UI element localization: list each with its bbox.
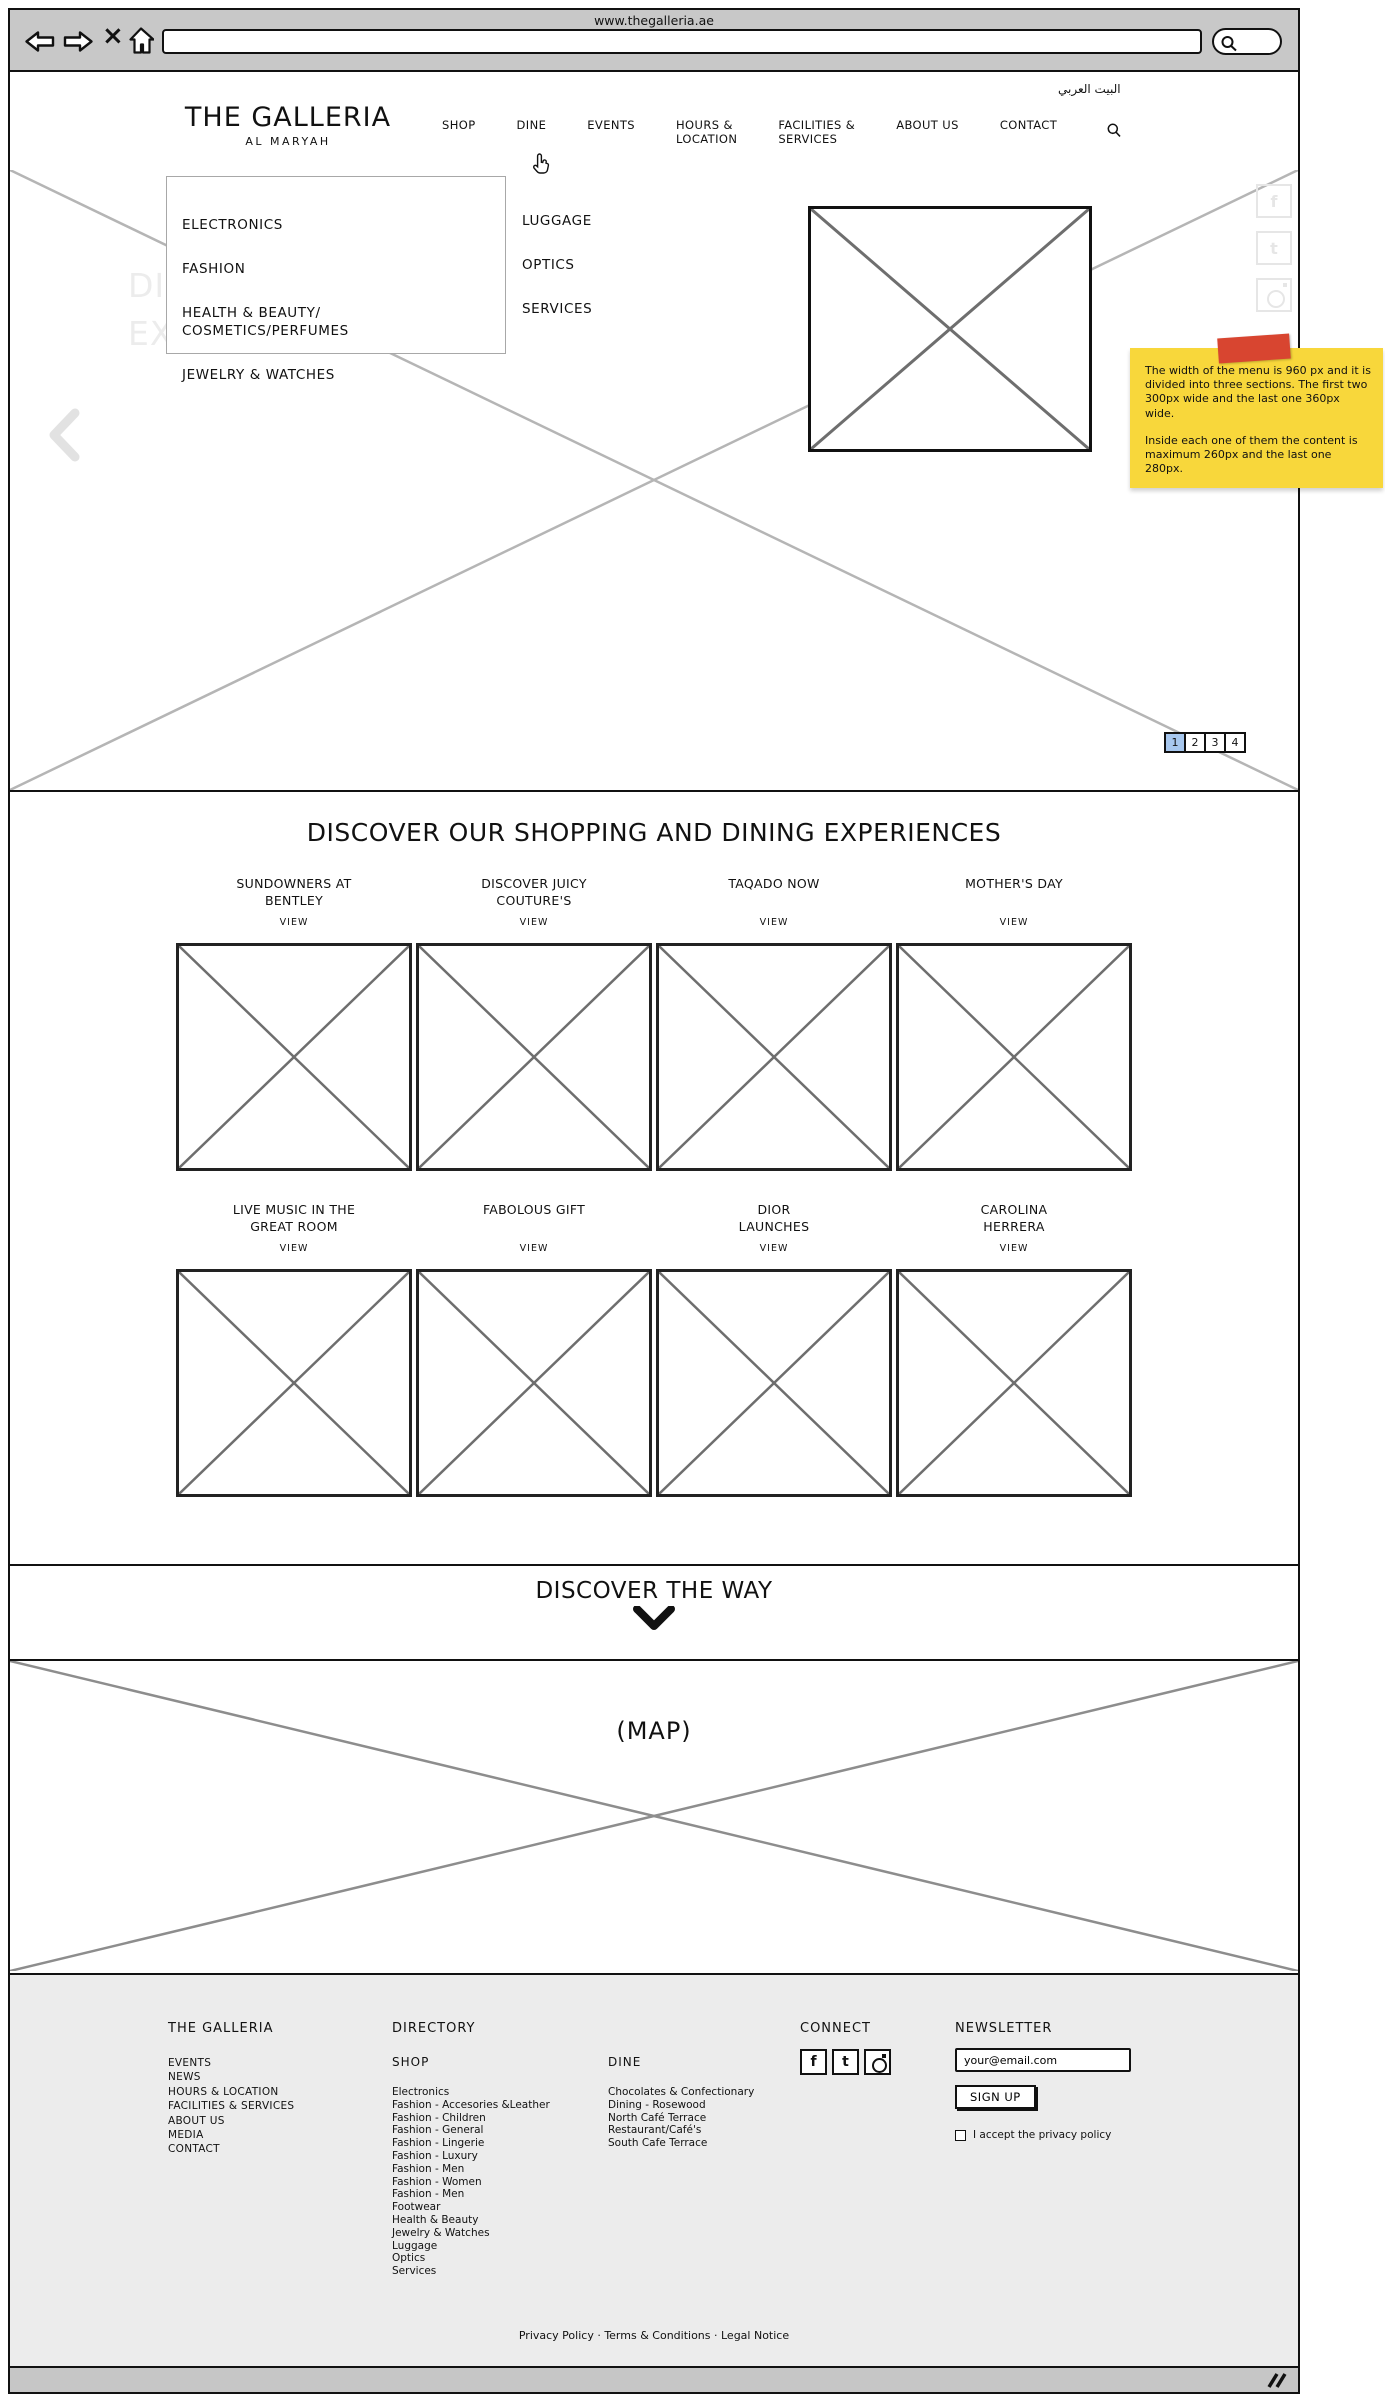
home-icon[interactable] xyxy=(128,26,154,59)
menu-item[interactable]: SERVICES xyxy=(522,300,592,318)
card-title: MOTHER'S DAY xyxy=(896,875,1132,917)
card-image-placeholder[interactable] xyxy=(896,1269,1132,1497)
card-image-placeholder[interactable] xyxy=(176,1269,412,1497)
directory-link[interactable]: Jewelry & Watches xyxy=(392,2227,550,2240)
card-view-link[interactable]: VIEW xyxy=(656,917,892,931)
carousel-page-button[interactable]: 3 xyxy=(1204,732,1226,753)
nav-item[interactable]: FACILITIES & SERVICES xyxy=(778,118,855,146)
carousel-page-button[interactable]: 1 xyxy=(1164,732,1186,753)
card-title: SUNDOWNERS AT BENTLEY xyxy=(176,875,412,917)
privacy-row: I accept the privacy policy xyxy=(955,2129,1131,2141)
experience-card: TAQADO NOW VIEW xyxy=(656,875,892,1171)
card-view-link[interactable]: VIEW xyxy=(896,1243,1132,1257)
url-field[interactable] xyxy=(162,29,1202,54)
annotation-note: The width of the menu is 960 px and it i… xyxy=(1130,348,1383,488)
menu-item[interactable]: ELECTRONICS xyxy=(182,216,349,234)
facebook-icon[interactable]: f xyxy=(1256,184,1292,218)
privacy-label: I accept the privacy policy xyxy=(973,2129,1111,2141)
experiences-heading: DISCOVER OUR SHOPPING AND DINING EXPERIE… xyxy=(10,792,1298,847)
nav-item[interactable]: EVENTS xyxy=(587,118,635,132)
directory-link[interactable]: Services xyxy=(392,2265,550,2278)
menu-item[interactable]: LUGGAGE xyxy=(522,212,592,230)
footer-shop-links: ElectronicsFashion - Accesories &Leather… xyxy=(392,2086,550,2278)
note-paragraph: Inside each one of them the content is m… xyxy=(1145,434,1371,477)
footer-link[interactable]: FACILITIES & SERVICES xyxy=(168,2099,294,2113)
footer-link[interactable]: ABOUT US xyxy=(168,2114,294,2128)
discover-the-way-section: DISCOVER THE WAY xyxy=(10,1564,1298,1661)
footer-dine-heading: DINE xyxy=(608,2055,754,2069)
card-title: CAROLINA HERRERA xyxy=(896,1201,1132,1243)
dine-link[interactable]: Dining - Rosewood xyxy=(608,2099,754,2112)
forward-icon[interactable] xyxy=(62,28,94,59)
card-title: LIVE MUSIC IN THE GREAT ROOM xyxy=(176,1201,412,1243)
way-heading: DISCOVER THE WAY xyxy=(10,1578,1298,1604)
browser-chrome: www.thegalleria.ae × xyxy=(10,10,1298,72)
directory-link[interactable]: Footwear xyxy=(392,2201,550,2214)
directory-link[interactable]: Fashion - General xyxy=(392,2124,550,2137)
experiences-section: DISCOVER OUR SHOPPING AND DINING EXPERIE… xyxy=(10,792,1298,1564)
experience-card: LIVE MUSIC IN THE GREAT ROOM VIEW xyxy=(176,1201,412,1497)
menu-item[interactable]: FASHION xyxy=(182,260,349,278)
footer-dine-links: Chocolates & ConfectionaryDining - Rosew… xyxy=(608,2086,754,2150)
footer-directory-heading: DIRECTORY xyxy=(392,2021,475,2036)
footer-galleria-column: THE GALLERIA EVENTSNEWSHOURS & LOCATIONF… xyxy=(168,2021,294,2157)
nav-item[interactable]: CONTACT xyxy=(1000,118,1057,132)
nav-item[interactable]: ABOUT US xyxy=(896,118,959,132)
experience-card: DIOR LAUNCHES VIEW xyxy=(656,1201,892,1497)
card-image-placeholder[interactable] xyxy=(416,943,652,1171)
hand-cursor-icon xyxy=(530,152,554,182)
footer-dine-column: DINE Chocolates & ConfectionaryDining - … xyxy=(608,2055,754,2150)
footer-link[interactable]: NEWS xyxy=(168,2070,294,2084)
carousel-pagination: 1234 xyxy=(1166,732,1246,753)
nav-item[interactable]: SHOP xyxy=(442,118,476,132)
experience-card: SUNDOWNERS AT BENTLEY VIEW xyxy=(176,875,412,1171)
directory-link[interactable]: Luggage xyxy=(392,2240,550,2253)
footer-link[interactable]: EVENTS xyxy=(168,2056,294,2070)
logo-title: THE GALLERIA xyxy=(166,102,410,133)
footer-galleria-links: EVENTSNEWSHOURS & LOCATIONFACILITIES & S… xyxy=(168,2056,294,2157)
footer-social-icons: f t xyxy=(800,2049,891,2075)
nav-search-icon[interactable] xyxy=(1106,122,1123,143)
card-title: TAQADO NOW xyxy=(656,875,892,917)
signup-button[interactable]: SIGN UP xyxy=(955,2085,1036,2109)
site-header: THE GALLERIA AL MARYAH SHOPDINEEVENTSHOU… xyxy=(10,72,1298,170)
card-title: DIOR LAUNCHES xyxy=(656,1201,892,1243)
footer-link[interactable]: HOURS & LOCATION xyxy=(168,2085,294,2099)
menu-item[interactable]: HEALTH & BEAUTY/ COSMETICS/PERFUMES xyxy=(182,304,349,340)
experiences-grid: SUNDOWNERS AT BENTLEY VIEW DISCOVER JUIC… xyxy=(176,875,1132,1497)
card-view-link[interactable]: VIEW xyxy=(416,1243,652,1257)
map-placeholder-x xyxy=(10,1661,1298,1971)
directory-link[interactable]: Fashion - Men xyxy=(392,2188,550,2201)
browser-window: www.thegalleria.ae × THE GALLERIA AL MAR… xyxy=(8,8,1300,2394)
note-paragraph: The width of the menu is 960 px and it i… xyxy=(1145,364,1371,421)
dine-link[interactable]: Restaurant/Café's xyxy=(608,2124,754,2137)
mega-menu-column-1: ELECTRONICSFASHIONHEALTH & BEAUTY/ COSME… xyxy=(182,216,349,410)
card-view-link[interactable]: VIEW xyxy=(176,1243,412,1257)
experience-card: MOTHER'S DAY VIEW xyxy=(896,875,1132,1171)
dine-link[interactable]: South Cafe Terrace xyxy=(608,2137,754,2150)
privacy-checkbox[interactable] xyxy=(955,2130,966,2141)
footer-shop-heading: SHOP xyxy=(392,2055,550,2069)
mega-menu-column-2: LUGGAGEOPTICSSERVICES xyxy=(522,212,592,344)
card-title: DISCOVER JUICY COUTURE'S xyxy=(416,875,652,917)
card-image-placeholder[interactable] xyxy=(656,943,892,1171)
statusbar xyxy=(10,2366,1298,2392)
directory-link[interactable]: Fashion - Men xyxy=(392,2163,550,2176)
card-view-link[interactable]: VIEW xyxy=(896,917,1132,931)
card-view-link[interactable]: VIEW xyxy=(656,1243,892,1257)
site-footer: THE GALLERIA EVENTSNEWSHOURS & LOCATIONF… xyxy=(10,1975,1298,2366)
twitter-icon[interactable]: t xyxy=(832,2049,859,2075)
chevron-down-icon[interactable] xyxy=(632,1606,676,1631)
back-icon[interactable] xyxy=(24,28,56,59)
hero-social-icons: f t xyxy=(1256,184,1292,312)
footer-shop-column: SHOP ElectronicsFashion - Accesories &Le… xyxy=(392,2055,550,2278)
directory-link[interactable]: Fashion - Children xyxy=(392,2112,550,2125)
search-icon xyxy=(1219,33,1240,54)
instagram-icon[interactable] xyxy=(864,2049,891,2075)
footer-link[interactable]: MEDIA xyxy=(168,2128,294,2142)
directory-link[interactable]: Fashion - Women xyxy=(392,2176,550,2189)
card-image-placeholder[interactable] xyxy=(896,943,1132,1171)
tape-decoration xyxy=(1217,334,1291,364)
footer-connect-column: CONNECT f t xyxy=(800,2021,891,2075)
legal-links[interactable]: Privacy Policy · Terms & Conditions · Le… xyxy=(10,2329,1298,2342)
footer-column-heading: THE GALLERIA xyxy=(168,2021,294,2036)
carousel-page-button[interactable]: 2 xyxy=(1184,732,1206,753)
carousel-prev-icon[interactable] xyxy=(44,408,82,466)
card-view-link[interactable]: VIEW xyxy=(176,917,412,931)
hero-image-placeholder xyxy=(808,206,1092,452)
directory-link[interactable]: Fashion - Luxury xyxy=(392,2150,550,2163)
map-section: (MAP) xyxy=(10,1661,1298,1975)
footer-link[interactable]: CONTACT xyxy=(168,2142,294,2156)
footer-newsletter-column: NEWSLETTER SIGN UP I accept the privacy … xyxy=(955,2021,1131,2141)
map-label: (MAP) xyxy=(10,1717,1298,1745)
directory-link[interactable]: Health & Beauty xyxy=(392,2214,550,2227)
menu-item[interactable]: OPTICS xyxy=(522,256,592,274)
browser-search-button[interactable] xyxy=(1212,28,1282,55)
hero-carousel: DISCOVER THE EXTRAORDINARY ELECTRONICSFA… xyxy=(10,170,1298,792)
twitter-icon[interactable]: t xyxy=(1256,231,1292,265)
dine-link[interactable]: North Café Terrace xyxy=(608,2112,754,2125)
directory-link[interactable]: Fashion - Accesories &Leather xyxy=(392,2099,550,2112)
footer-connect-heading: CONNECT xyxy=(800,2021,891,2036)
email-field[interactable] xyxy=(955,2048,1131,2072)
directory-link[interactable]: Fashion - Lingerie xyxy=(392,2137,550,2150)
footer-newsletter-heading: NEWSLETTER xyxy=(955,2021,1131,2036)
language-switch-link[interactable]: البيت العربي xyxy=(1058,82,1121,96)
main-nav: SHOPDINEEVENTSHOURS & LOCATIONFACILITIES… xyxy=(442,118,1057,146)
stop-icon[interactable]: × xyxy=(102,22,124,50)
facebook-icon[interactable]: f xyxy=(800,2049,827,2075)
card-image-placeholder[interactable] xyxy=(656,1269,892,1497)
directory-link[interactable]: Electronics xyxy=(392,2086,550,2099)
card-view-link[interactable]: VIEW xyxy=(416,917,652,931)
card-image-placeholder[interactable] xyxy=(416,1269,652,1497)
experience-card: DISCOVER JUICY COUTURE'S VIEW xyxy=(416,875,652,1171)
instagram-icon[interactable] xyxy=(1256,278,1292,312)
logo-subtitle: AL MARYAH xyxy=(166,135,410,148)
experience-card: CAROLINA HERRERA VIEW xyxy=(896,1201,1132,1497)
card-title: FABOLOUS GIFT xyxy=(416,1201,652,1243)
browser-page-title: www.thegalleria.ae xyxy=(10,13,1298,28)
carousel-page-button[interactable]: 4 xyxy=(1224,732,1246,753)
resize-handle-icon[interactable] xyxy=(1264,2372,1288,2393)
dine-link[interactable]: Chocolates & Confectionary xyxy=(608,2086,754,2099)
menu-item[interactable]: JEWELRY & WATCHES xyxy=(182,366,349,384)
directory-link[interactable]: Optics xyxy=(392,2252,550,2265)
card-image-placeholder[interactable] xyxy=(176,943,412,1171)
nav-item[interactable]: HOURS & LOCATION xyxy=(676,118,737,146)
experience-card: FABOLOUS GIFT VIEW xyxy=(416,1201,652,1497)
site-logo[interactable]: THE GALLERIA AL MARYAH xyxy=(166,102,410,148)
nav-item[interactable]: DINE xyxy=(517,118,547,132)
